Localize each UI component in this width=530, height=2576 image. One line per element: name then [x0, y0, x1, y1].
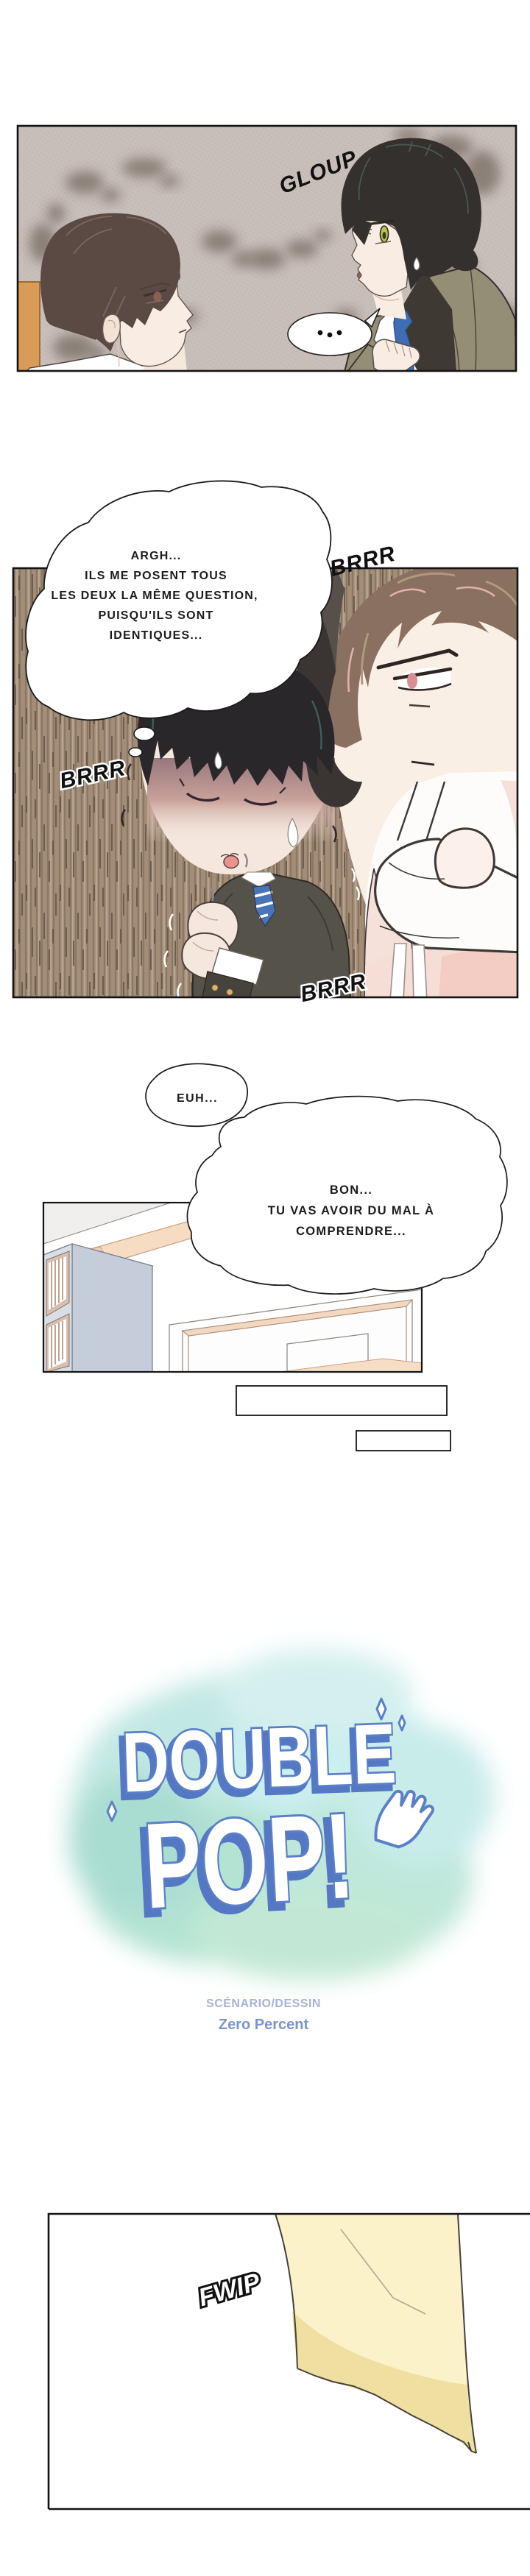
- svg-text:Zero Percent: Zero Percent: [219, 2017, 309, 2033]
- svg-text:PUISQU'ILS SONT: PUISQU'ILS SONT: [99, 609, 214, 622]
- svg-text:ILS ME POSENT TOUS: ILS ME POSENT TOUS: [85, 570, 227, 582]
- svg-text:TU VAS AVOIR DU MAL À: TU VAS AVOIR DU MAL À: [268, 1203, 435, 1217]
- svg-text:LES DEUX LA MÊME QUESTION,: LES DEUX LA MÊME QUESTION,: [51, 588, 258, 602]
- svg-text:ARGH...: ARGH...: [131, 550, 182, 562]
- svg-text:COMPRENDRE...: COMPRENDRE...: [296, 1225, 406, 1238]
- svg-text:IDENTIQUES...: IDENTIQUES...: [110, 629, 203, 642]
- svg-text:SCÉNARIO/DESSIN: SCÉNARIO/DESSIN: [206, 1996, 321, 2010]
- svg-text:EUH...: EUH...: [177, 1092, 218, 1105]
- svg-text:POP!: POP!: [141, 1788, 357, 1934]
- svg-text:BON...: BON...: [330, 1183, 372, 1197]
